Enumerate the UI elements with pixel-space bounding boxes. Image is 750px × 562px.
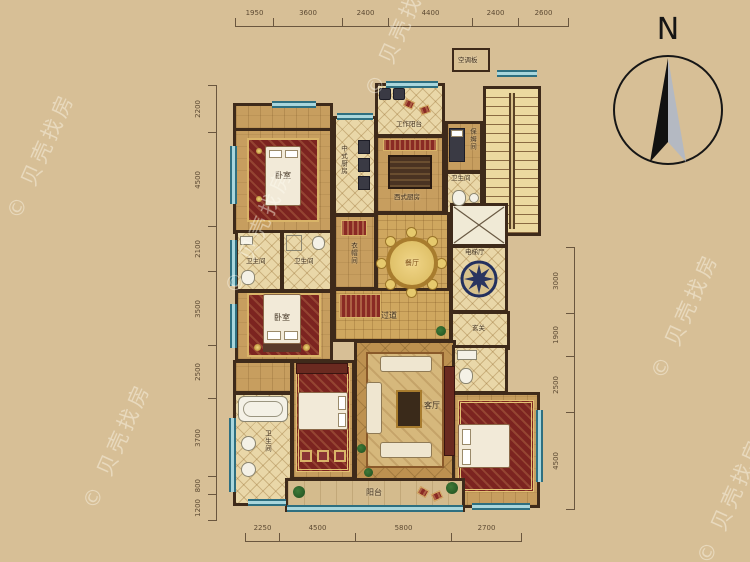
bed bbox=[449, 128, 465, 162]
room-label-living: 客厅 bbox=[424, 402, 440, 410]
sink bbox=[240, 236, 253, 245]
dim-value: 3700 bbox=[195, 429, 202, 447]
room-label-balcony: 阳台 bbox=[366, 489, 382, 497]
room-label-bathroom-left-2: 卫生间 bbox=[294, 258, 314, 265]
chair bbox=[334, 450, 346, 462]
dim-value: 2250 bbox=[246, 524, 279, 532]
dimension-chain-left: 2200 4500 2100 3500 2500 3700 800 1200 bbox=[208, 85, 217, 521]
dim-value: 2600 bbox=[519, 9, 568, 17]
dim-segment: 4500 bbox=[279, 533, 355, 542]
dimension-chain-top: 1950 3600 2400 4400 2400 2600 bbox=[235, 18, 569, 27]
watermark: © 贝壳找房 bbox=[75, 377, 158, 513]
dim-value: 4500 bbox=[280, 524, 355, 532]
dimension-chain-bottom: 2250 4500 5800 2700 bbox=[245, 533, 522, 542]
watermark: © 贝壳找房 bbox=[689, 432, 750, 562]
shower bbox=[286, 235, 302, 251]
dim-value: 2700 bbox=[452, 524, 521, 532]
pillow bbox=[284, 331, 298, 340]
room-label-bathroom-left-1: 卫生间 bbox=[246, 258, 266, 265]
nightstand-lamp bbox=[303, 344, 310, 351]
room-label-work-balcony: 工作阳台 bbox=[396, 121, 422, 128]
bed bbox=[458, 424, 510, 468]
dim-value: 4500 bbox=[553, 452, 560, 470]
pillow bbox=[269, 150, 282, 158]
tv-console bbox=[444, 366, 455, 456]
dim-value: 4400 bbox=[389, 9, 472, 17]
pillow bbox=[462, 429, 471, 445]
coffee-table bbox=[396, 390, 422, 428]
dim-value: 3500 bbox=[195, 300, 202, 318]
room-label-master-bathroom: 卫生间 bbox=[264, 430, 271, 453]
room-label-western-kitchen: 西式厨房 bbox=[394, 194, 420, 201]
room-label-elevator-hall: 电梯厅 bbox=[465, 249, 485, 256]
dim-segment: 2400 bbox=[342, 18, 388, 27]
north-label: N bbox=[610, 12, 726, 47]
dim-segment: 1200 bbox=[208, 494, 217, 521]
sofa bbox=[380, 356, 432, 372]
pillow bbox=[285, 150, 298, 158]
pillow bbox=[462, 449, 471, 465]
dresser bbox=[296, 363, 348, 374]
dim-value: 2200 bbox=[195, 100, 202, 118]
dim-value: 2500 bbox=[553, 376, 560, 394]
dim-segment: 3700 bbox=[208, 398, 217, 476]
rug bbox=[341, 220, 367, 236]
pillow bbox=[267, 331, 281, 340]
dim-segment: 2100 bbox=[208, 226, 217, 271]
pillow bbox=[338, 413, 346, 427]
plant bbox=[436, 326, 446, 336]
dim-segment: 3600 bbox=[273, 18, 342, 27]
dim-value: 2500 bbox=[195, 363, 202, 381]
dim-segment: 2600 bbox=[518, 18, 569, 27]
room-label-nanny-bathroom: 卫生间 bbox=[451, 175, 471, 182]
nightstand-lamp bbox=[256, 196, 262, 202]
window bbox=[272, 101, 316, 108]
dim-segment: 4400 bbox=[388, 18, 472, 27]
window bbox=[230, 146, 237, 204]
dim-segment: 2200 bbox=[208, 85, 217, 132]
dim-segment: 5800 bbox=[355, 533, 451, 542]
dim-segment: 2700 bbox=[451, 533, 522, 542]
vanity bbox=[457, 350, 477, 360]
dim-segment: 1900 bbox=[566, 313, 575, 356]
stair-rail bbox=[509, 93, 515, 229]
washing-machine bbox=[379, 88, 391, 100]
toilet bbox=[312, 236, 325, 250]
window bbox=[230, 240, 237, 286]
window bbox=[229, 418, 236, 492]
sink bbox=[469, 193, 479, 203]
window bbox=[230, 304, 237, 348]
plant bbox=[364, 468, 373, 477]
sink bbox=[241, 436, 256, 451]
kitchen-appliance bbox=[358, 140, 370, 154]
kitchen-appliance bbox=[358, 158, 370, 172]
sofa bbox=[380, 442, 432, 458]
dim-segment: 4500 bbox=[208, 132, 217, 226]
chair bbox=[300, 450, 312, 462]
window bbox=[472, 503, 530, 510]
rug bbox=[339, 294, 381, 318]
room-label-chinese-kitchen: 中式厨房 bbox=[340, 145, 347, 175]
pillow bbox=[338, 396, 346, 410]
dim-value: 3000 bbox=[553, 272, 560, 290]
washing-machine bbox=[393, 88, 405, 100]
room-label-foyer: 玄关 bbox=[472, 325, 485, 332]
ac-panel: 空调板 bbox=[452, 48, 490, 72]
dim-segment: 4500 bbox=[566, 412, 575, 510]
window bbox=[497, 70, 537, 77]
dim-segment: 3500 bbox=[208, 271, 217, 345]
dim-value: 2400 bbox=[343, 9, 388, 17]
dim-value: 5800 bbox=[356, 524, 451, 532]
bathtub bbox=[238, 396, 288, 422]
room-label-corridor: 过道 bbox=[381, 312, 397, 320]
dim-value: 1900 bbox=[553, 326, 560, 344]
room-label-bedroom-top-left: 卧室 bbox=[275, 172, 291, 180]
window bbox=[386, 81, 438, 88]
kitchen-appliance bbox=[358, 176, 370, 190]
kitchen-island bbox=[388, 155, 432, 189]
watermark: © 贝壳找房 bbox=[643, 247, 726, 383]
toilet bbox=[241, 270, 255, 285]
pillow bbox=[451, 130, 463, 137]
nightstand-lamp bbox=[254, 344, 261, 351]
nightstand-lamp bbox=[256, 148, 262, 154]
bed-footboard bbox=[263, 344, 301, 352]
dim-segment: 800 bbox=[208, 476, 217, 494]
room-label-nanny-room: 保姆间 bbox=[469, 128, 476, 151]
floor-medallion bbox=[460, 260, 498, 298]
chair bbox=[317, 450, 329, 462]
dim-segment: 1950 bbox=[235, 18, 273, 27]
compass-icon bbox=[610, 52, 726, 168]
room-label-cloakroom: 衣帽间 bbox=[350, 242, 357, 265]
kitchen-runner bbox=[383, 139, 437, 151]
sofa bbox=[366, 382, 382, 434]
room-label-bedroom-middle: 卧室 bbox=[274, 314, 290, 322]
toilet bbox=[452, 190, 466, 206]
dim-value: 3600 bbox=[274, 9, 342, 17]
elevator-x-icon bbox=[453, 206, 505, 244]
dim-segment: 2500 bbox=[566, 356, 575, 412]
dim-segment: 2250 bbox=[245, 533, 279, 542]
dim-value: 2400 bbox=[473, 9, 518, 17]
dim-value: 2100 bbox=[195, 240, 202, 258]
dimension-chain-right: 3000 1900 2500 4500 bbox=[566, 247, 575, 510]
watermark: © 贝壳找房 bbox=[0, 87, 81, 223]
dim-value: 4500 bbox=[195, 171, 202, 189]
toilet bbox=[459, 368, 473, 384]
room-label-ac-panel: 空调板 bbox=[458, 57, 478, 64]
bed bbox=[298, 392, 348, 430]
window bbox=[536, 410, 543, 482]
balcony-railing bbox=[287, 505, 463, 512]
plant bbox=[446, 482, 458, 494]
dim-value: 1950 bbox=[236, 9, 273, 17]
dim-segment: 3000 bbox=[566, 247, 575, 313]
dim-value: 1200 bbox=[195, 499, 202, 517]
dim-segment: 2400 bbox=[472, 18, 518, 27]
plant bbox=[357, 444, 366, 453]
room-label-dining: 餐厅 bbox=[405, 260, 419, 267]
floor-plan-canvas: 1950 3600 2400 4400 2400 2600 2250 4500 … bbox=[0, 0, 750, 562]
dining-table: 餐厅 bbox=[386, 237, 438, 289]
sink bbox=[241, 462, 256, 477]
window bbox=[248, 499, 286, 506]
elevator bbox=[450, 203, 508, 247]
dim-segment: 2500 bbox=[208, 345, 217, 398]
bathtub-basin bbox=[243, 401, 283, 417]
window bbox=[337, 113, 373, 120]
dim-value: 800 bbox=[195, 479, 202, 492]
closet-bottom-left bbox=[233, 360, 293, 394]
plant bbox=[293, 486, 305, 498]
